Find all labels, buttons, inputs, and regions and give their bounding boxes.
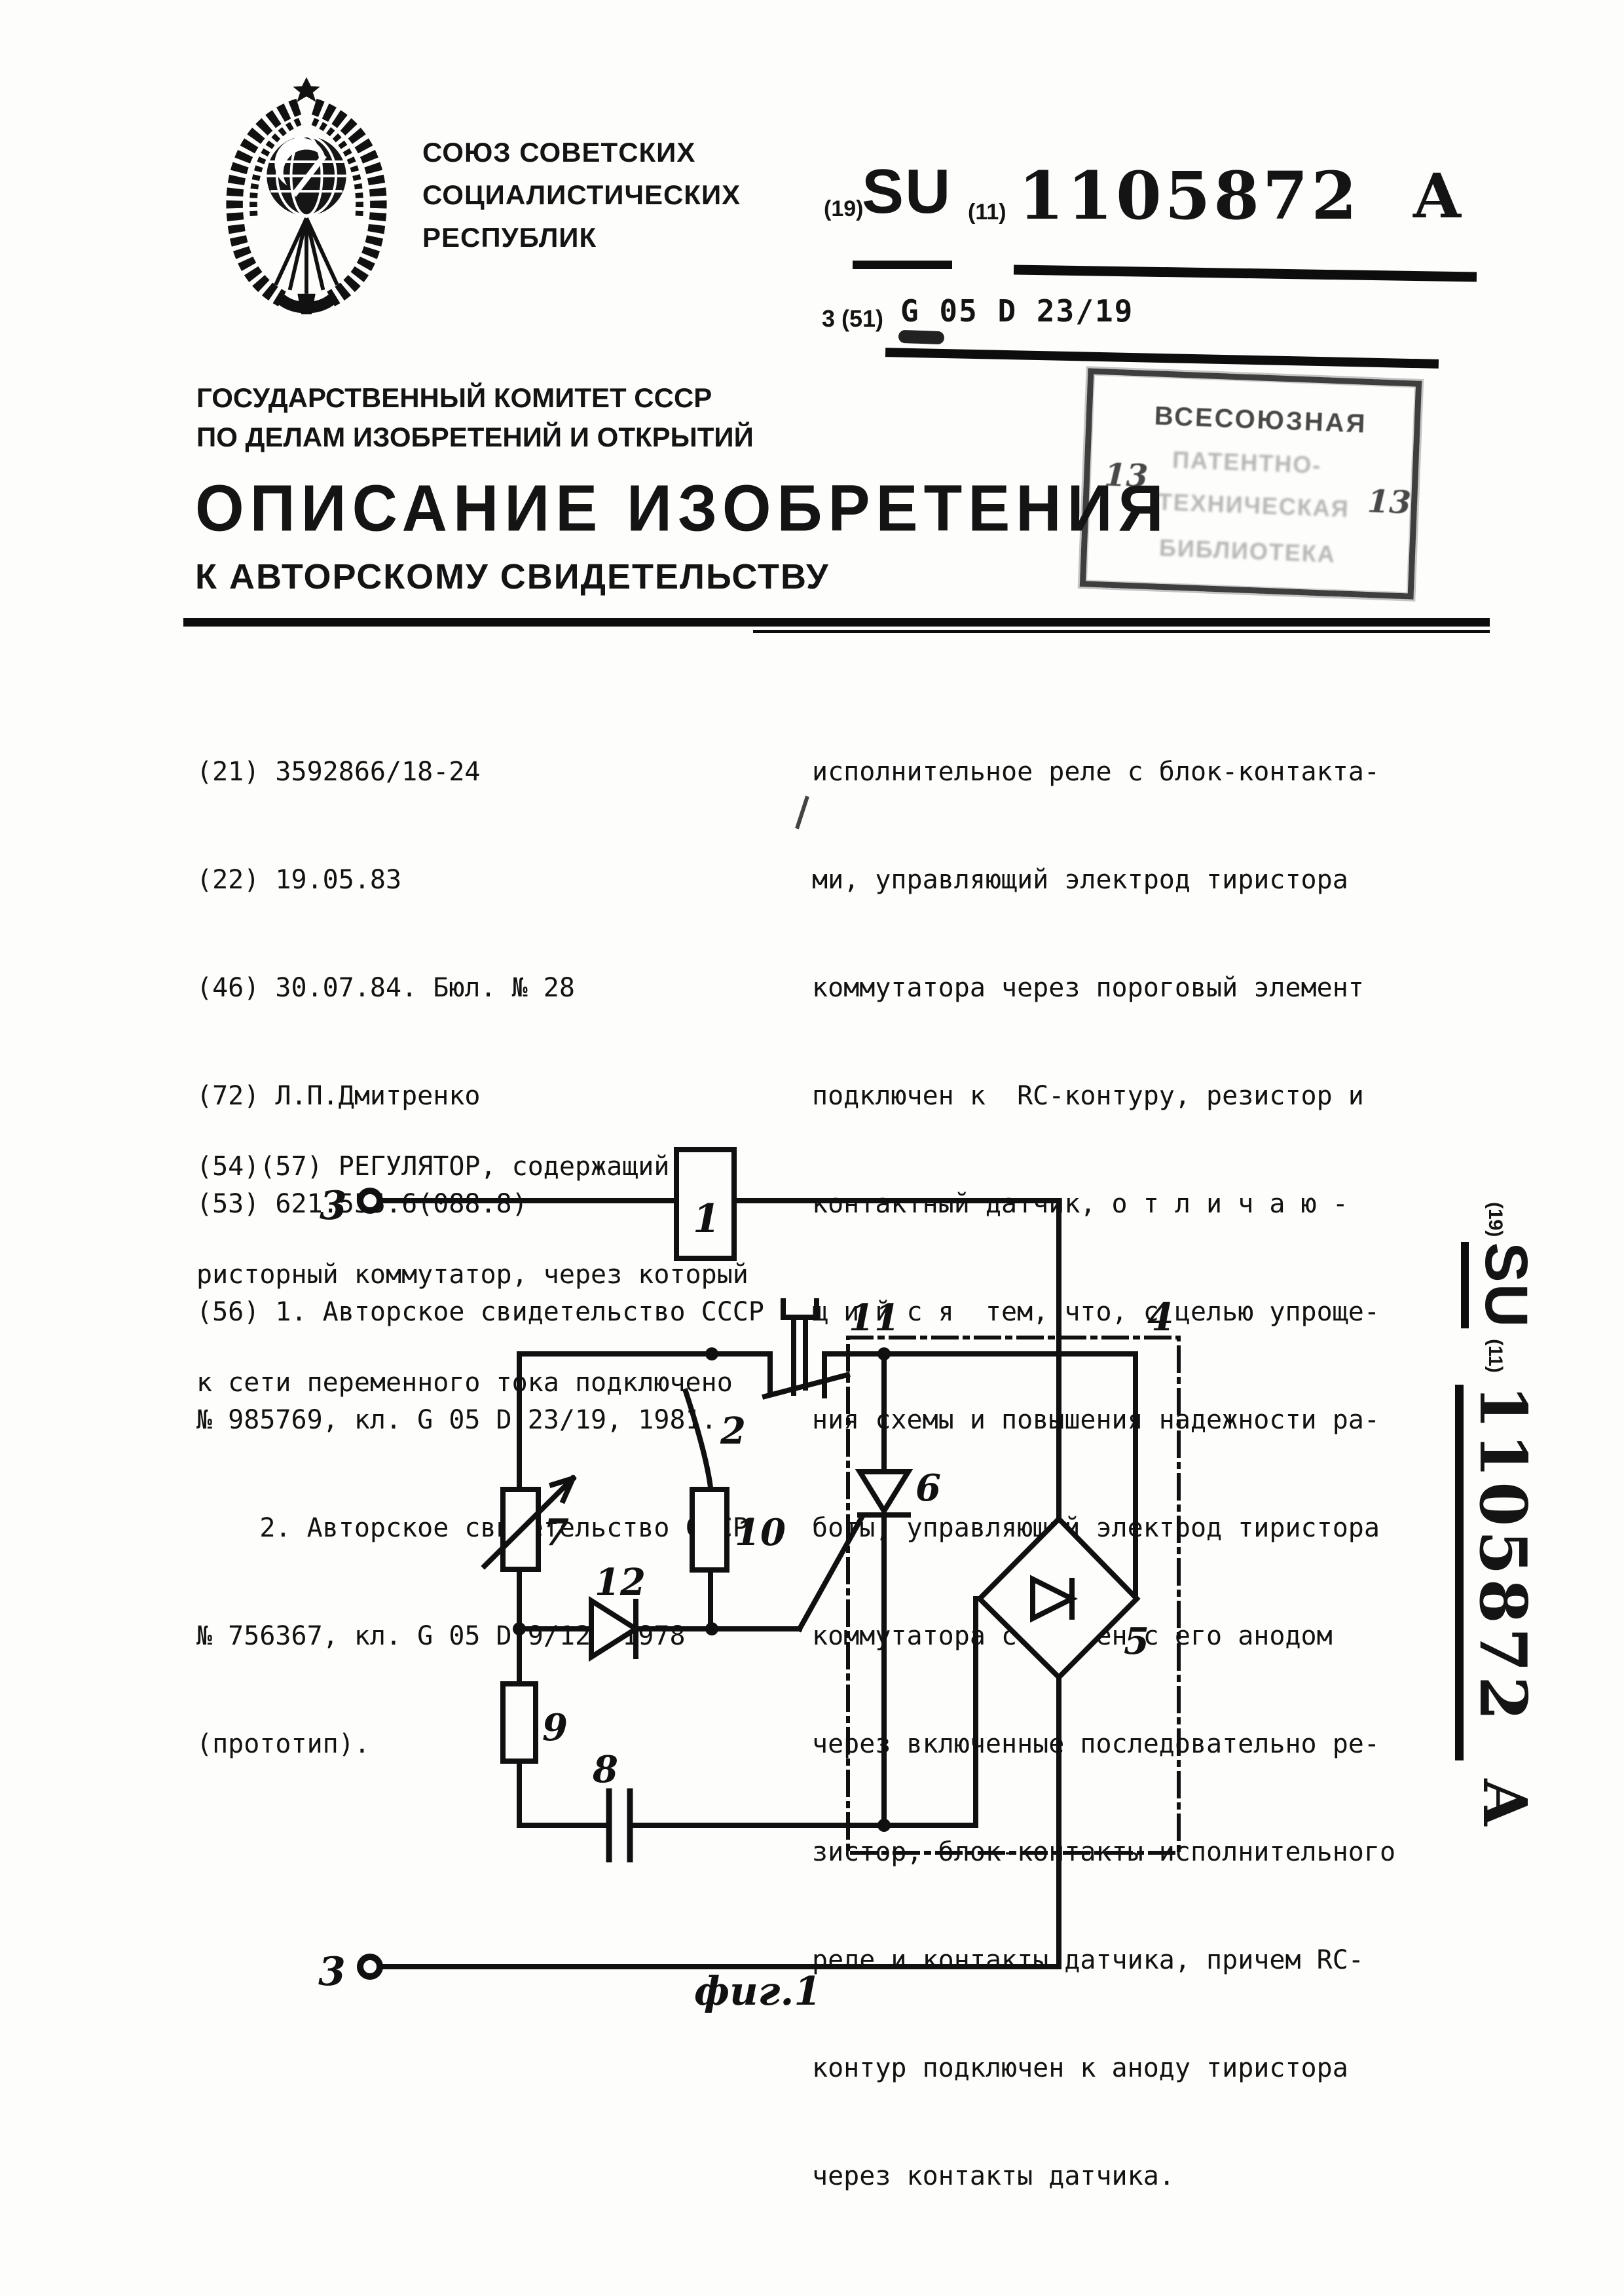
component-label: 4 (1147, 1295, 1173, 1339)
committee-line: ГОСУДАРСТВЕННЫЙ КОМИТЕТ СССР (196, 378, 754, 418)
underline-class (885, 348, 1439, 369)
side-kind: A (1469, 1779, 1540, 1825)
ref-line: (21) 3592866/18-24 (196, 754, 764, 790)
resistor-9: 9 (503, 1629, 568, 1825)
rheostat-7: 7 (485, 1354, 573, 1629)
header-rule (183, 618, 1490, 627)
code-19: (19) (824, 196, 863, 222)
ref-line: (46) 30.07.84. Бюл. № 28 (196, 970, 764, 1006)
union-name: СОЮЗ СОВЕТСКИХ СОЦИАЛИСТИЧЕСКИХ РЕСПУБЛИ… (422, 131, 741, 259)
component-label: 11 (849, 1296, 900, 1339)
union-line: СОЦИАЛИСТИЧЕСКИХ (422, 173, 741, 216)
component-label: 10 (735, 1511, 786, 1554)
code-11: (11) (968, 200, 1006, 225)
union-line: РЕСПУБЛИК (422, 216, 741, 259)
component-label: 9 (542, 1706, 568, 1749)
stamp-line-1: ВСЕСОЮЗНАЯ (1154, 401, 1367, 439)
side-country: SU (1461, 1242, 1540, 1328)
component-label: 2 (720, 1410, 746, 1453)
pen-mark (795, 795, 809, 829)
diode-12: 12 (519, 1561, 800, 1657)
component-label: 12 (595, 1561, 646, 1604)
page-title: ОПИСАНИЕ ИЗОБРЕТЕНИЯ (195, 471, 1170, 546)
class-index: 3 (51) (822, 305, 883, 333)
side-publication-label: (19) SU (11) 1105872 A (1426, 1202, 1540, 1831)
fuse-1: 1 (676, 1150, 734, 1258)
component-label: 5 (1124, 1620, 1149, 1663)
ink-dash (898, 330, 945, 344)
kind-code: A (1413, 160, 1461, 232)
star-icon (293, 77, 320, 102)
committee-line: ПО ДЕЛАМ ИЗОБРЕТЕНИЙ И ОТКРЫТИЙ (196, 418, 754, 457)
thyristor-6: 6 (800, 1354, 941, 1825)
patent-page: СОЮЗ СОВЕТСКИХ СОЦИАЛИСТИЧЕСКИХ РЕСПУБЛИ… (0, 0, 1624, 2296)
component-label: 6 (915, 1467, 941, 1510)
ref-line: (22) 19.05.83 (196, 862, 764, 898)
claim-line: ми, управляющий электрод тиристора (812, 862, 1395, 898)
circuit-figure: 3 1 3 4 11 2 (288, 1106, 1257, 2069)
country-code: SU (862, 156, 951, 228)
union-line: СОЮЗ СОВЕТСКИХ (422, 131, 741, 173)
terminal-label: 3 (320, 1183, 347, 1229)
component-label: 7 (544, 1511, 569, 1554)
terminal-label: 3 (318, 1949, 346, 1995)
stamp-number-left: 13 (1103, 456, 1149, 495)
mains-terminal-bottom: 3 (318, 1677, 1059, 1995)
side-code11: (11) (1484, 1339, 1506, 1373)
sensor-contact-11: 11 (519, 1296, 900, 1396)
bridge-rectifier-5: 5 (980, 1519, 1149, 1677)
page-subtitle: К АВТОРСКОМУ СВИДЕТЕЛЬСТВУ (195, 556, 830, 597)
header-rule-thin (753, 630, 1490, 633)
library-stamp: ВСЕСОЮЗНАЯ ПАТЕНТНО- ТЕХНИЧЕСКАЯ БИБЛИОТ… (1080, 368, 1422, 599)
ussr-emblem (216, 73, 397, 317)
switch-2: 2 (686, 1391, 746, 1487)
side-code19: (19) (1484, 1202, 1506, 1237)
component-label: 8 (592, 1748, 618, 1791)
stamp-line-3: ТЕХНИЧЕСКАЯ (1157, 488, 1350, 523)
underline-number (1014, 264, 1477, 282)
claim-line: исполнительное реле с блок-контакта- (812, 754, 1395, 790)
stamp-number-right: 13 (1367, 483, 1412, 522)
underline-su (853, 261, 952, 269)
mains-terminal-top: 3 (320, 1183, 676, 1229)
publication-number: 1105872 (1018, 157, 1360, 234)
stamp-line-2: ПАТЕНТНО- (1172, 446, 1323, 479)
component-label: 1 (693, 1196, 720, 1242)
figure-caption: фиг.1 (694, 1969, 821, 2014)
claim-line: через контакты датчика. (812, 2159, 1395, 2195)
committee: ГОСУДАРСТВЕННЫЙ КОМИТЕТ СССР ПО ДЕЛАМ ИЗ… (196, 378, 754, 457)
resistor-10: 10 (692, 1489, 786, 1629)
stamp-line-4: БИБЛИОТЕКА (1158, 534, 1336, 568)
capacitor-8: 8 (519, 1599, 976, 1859)
claim-line: коммутатора через пороговый элемент (812, 970, 1395, 1006)
side-number: 1105872 (1455, 1385, 1540, 1760)
class-code: G 05 D 23/19 (900, 293, 1134, 329)
